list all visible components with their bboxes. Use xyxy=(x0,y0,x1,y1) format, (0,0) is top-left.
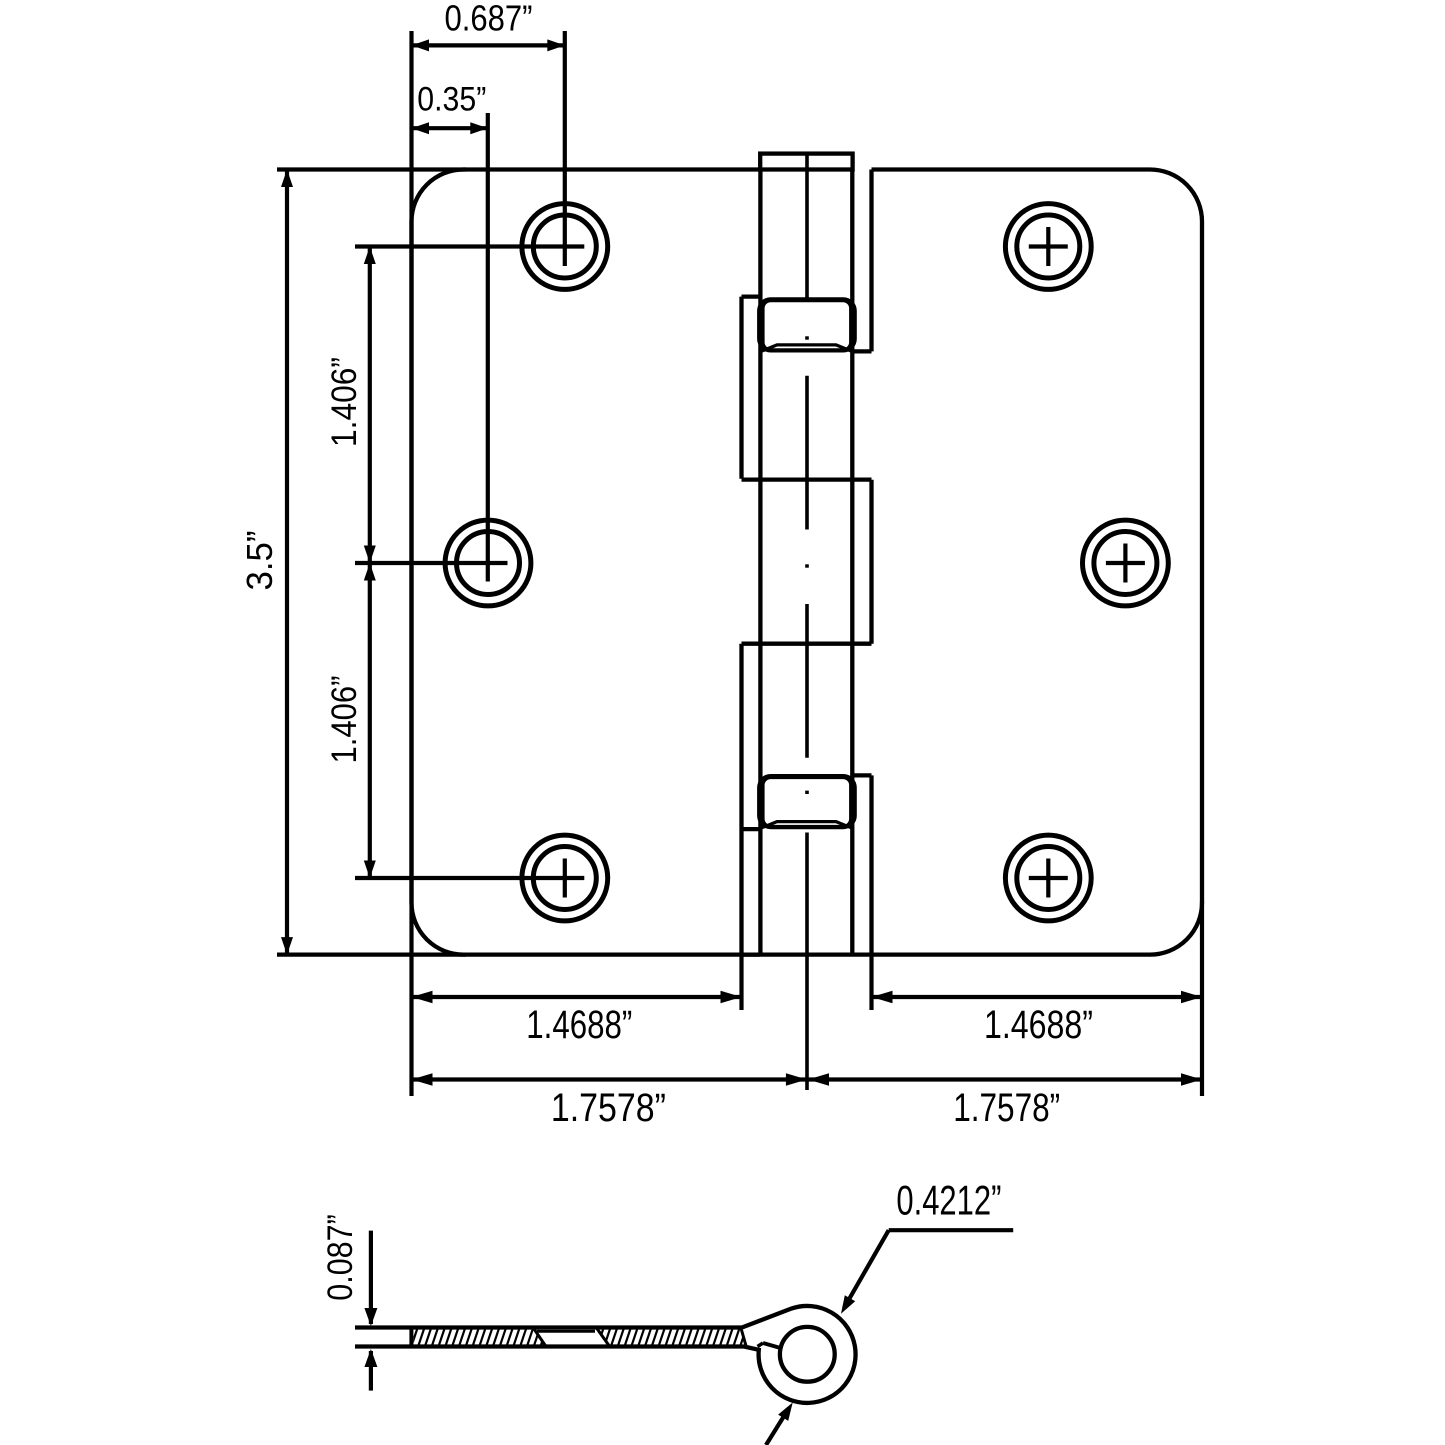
svg-text:1.4688”: 1.4688” xyxy=(526,1003,632,1047)
svg-text:0.35”: 0.35” xyxy=(417,81,486,119)
svg-text:1.4688”: 1.4688” xyxy=(984,1003,1093,1047)
svg-text:1.7578”: 1.7578” xyxy=(953,1086,1060,1130)
svg-text:0.087”: 0.087” xyxy=(321,1214,360,1301)
svg-text:1.7578”: 1.7578” xyxy=(551,1086,666,1130)
svg-text:1.406”: 1.406” xyxy=(325,676,364,764)
svg-text:1.406”: 1.406” xyxy=(325,357,364,447)
svg-text:0.687”: 0.687” xyxy=(445,0,533,39)
svg-text:0.4212”: 0.4212” xyxy=(896,1176,1001,1223)
svg-text:3.5”: 3.5” xyxy=(239,531,280,591)
